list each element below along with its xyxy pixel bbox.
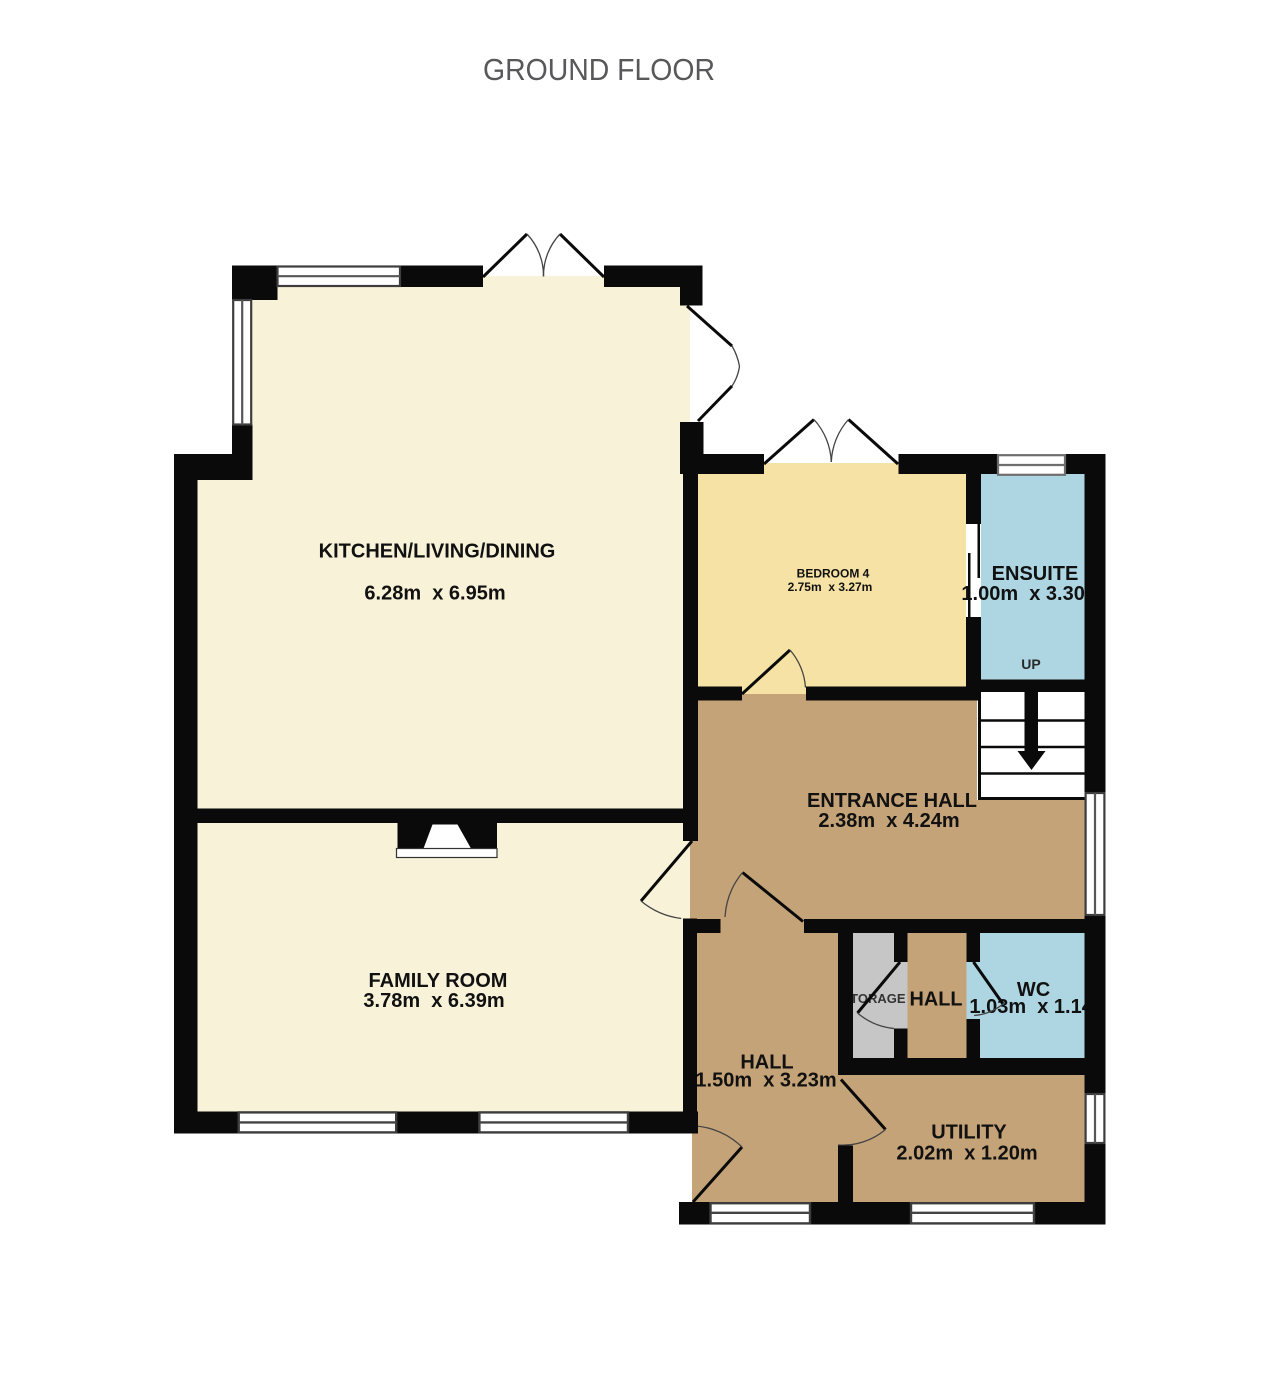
svg-text:3.78m x 6.39m: 3.78m x 6.39m <box>363 990 504 1012</box>
svg-text:2.75m x 3.27m: 2.75m x 3.27m <box>788 580 873 594</box>
svg-text:ENSUITE: ENSUITE <box>992 563 1079 585</box>
svg-text:1.00m x 3.30m: 1.00m x 3.30m <box>961 583 1102 605</box>
svg-text:UTILITY: UTILITY <box>931 1122 1007 1144</box>
svg-text:ENTRANCE HALL: ENTRANCE HALL <box>807 790 977 812</box>
svg-text:1.50m x 3.23m: 1.50m x 3.23m <box>695 1070 836 1092</box>
svg-text:KITCHEN/LIVING/DINING: KITCHEN/LIVING/DINING <box>319 541 556 563</box>
svg-text:6.28m x 6.95m: 6.28m x 6.95m <box>364 583 505 605</box>
svg-text:2.38m x 4.24m: 2.38m x 4.24m <box>818 810 959 832</box>
svg-text:FAMILY ROOM: FAMILY ROOM <box>369 970 508 992</box>
svg-text:HALL: HALL <box>910 989 963 1011</box>
svg-text:BEDROOM 4: BEDROOM 4 <box>797 567 870 581</box>
svg-text:GROUND FLOOR: GROUND FLOOR <box>483 52 715 87</box>
svg-text:2.02m x 1.20m: 2.02m x 1.20m <box>896 1143 1037 1165</box>
svg-text:UP: UP <box>1021 656 1040 672</box>
